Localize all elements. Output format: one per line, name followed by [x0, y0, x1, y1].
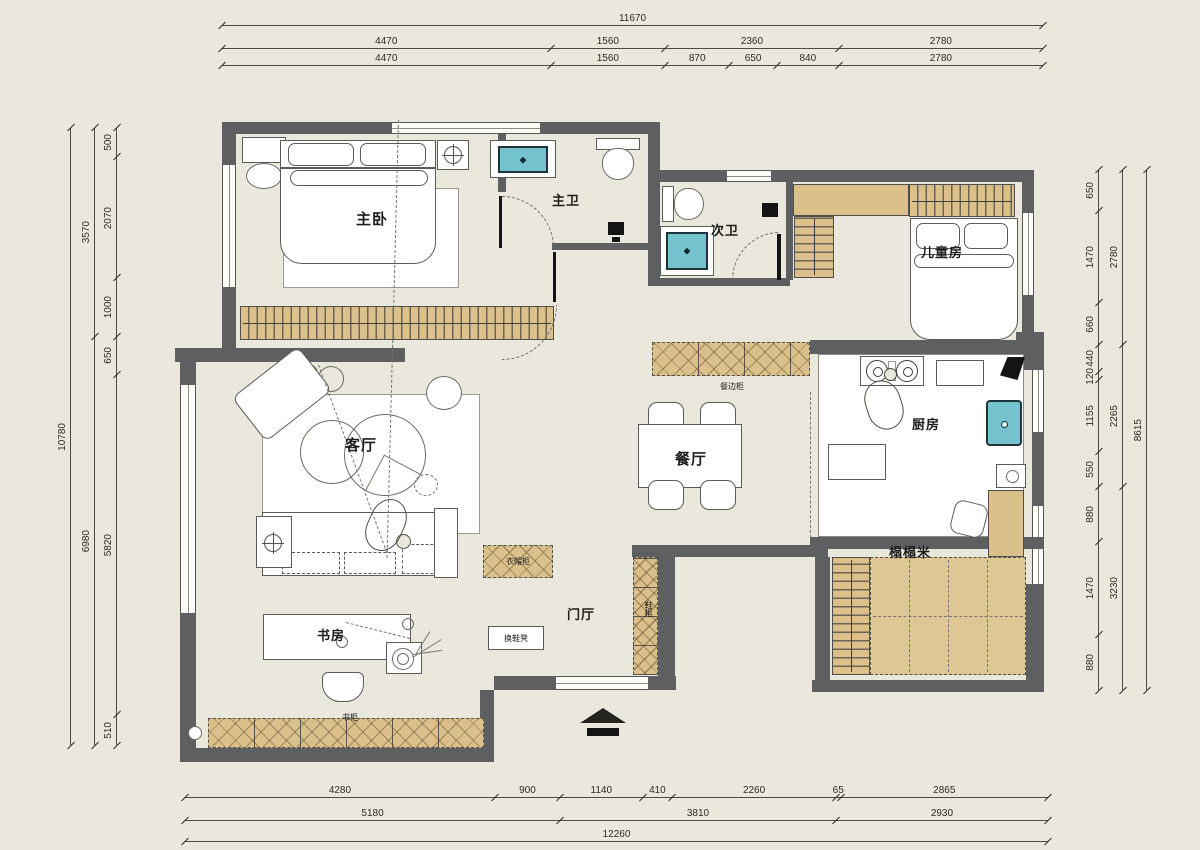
tatami-wardrobe [832, 557, 870, 675]
room-label-living: 客厅 [330, 434, 392, 455]
dim-col-left-mid: 35706980 [82, 128, 100, 745]
toilet-tank [662, 186, 674, 222]
wall-segment [648, 170, 727, 182]
washer-icon [762, 203, 778, 217]
room-label-kitchen: 厨房 [895, 414, 957, 433]
lamp-icon [444, 146, 462, 164]
dining-chair [648, 480, 684, 510]
cabinet-label-bookcase: 书柜 [330, 712, 370, 723]
cabinet-label-sideboard: 餐边柜 [706, 381, 758, 392]
wall-segment [1022, 182, 1034, 215]
door-swing-arc [450, 196, 554, 300]
kids-wardrobe-side [794, 216, 834, 278]
door-swing-arc [447, 250, 557, 360]
wall-segment [648, 122, 660, 286]
room-label-study: 书房 [305, 625, 357, 644]
sofa-armrest [434, 508, 458, 578]
kids-wardrobe [909, 184, 1015, 217]
window [180, 385, 196, 613]
room-label-second-bath: 次卫 [700, 220, 750, 239]
toilet-bowl [602, 148, 634, 180]
cabinet-label-cloak: 衣帽柜 [486, 556, 550, 567]
stool [246, 163, 282, 189]
wall-segment [1022, 295, 1034, 337]
wall-segment [222, 122, 236, 167]
sideboard-cabinet [652, 342, 810, 376]
window [1022, 213, 1034, 295]
dim-row-top-total: 11670 [222, 14, 1043, 30]
counter-board [936, 360, 984, 386]
wall-segment [180, 748, 482, 762]
dim-col-right-total: 8615 [1134, 170, 1152, 690]
entry-door-opening [556, 676, 648, 690]
room-label-dining: 餐厅 [660, 448, 722, 469]
room-label-tatami: 榻榻米 [872, 542, 948, 561]
wall-segment [648, 676, 676, 690]
entry-arrow-bar [587, 728, 619, 736]
window [727, 170, 771, 182]
wall-segment [180, 362, 196, 387]
dim-row-bottom-inner: 428090011404102260652865 [185, 786, 1048, 802]
wall-fixture-icon [608, 222, 624, 235]
sofa-cushion [402, 544, 438, 574]
study-chair [322, 672, 364, 702]
wall-segment [815, 557, 830, 692]
window [222, 165, 236, 287]
wall-segment [786, 182, 793, 280]
floor-plan-canvas: 11670 4470156023602780 44701560870650840… [0, 0, 1200, 850]
wall-segment [810, 340, 1044, 354]
wall-segment [771, 170, 1034, 182]
door-leaf [777, 234, 781, 280]
side-table-round [426, 376, 462, 410]
dim-col-left-inner: 500207010006505820510 [104, 128, 122, 745]
burner-icon [896, 360, 918, 382]
wall-segment [658, 557, 675, 683]
wall-segment [812, 680, 1044, 692]
plant-pot-inner [397, 653, 409, 665]
pillow [360, 143, 426, 166]
speaker-icon [264, 534, 282, 552]
wall-segment [1032, 432, 1044, 506]
floor-drain-icon [1006, 470, 1019, 483]
wall-segment [1026, 584, 1044, 692]
room-label-kids-room: 儿童房 [905, 242, 979, 261]
entry-arrow-icon [580, 708, 626, 723]
door-leaf [553, 252, 556, 302]
dim-row-top-inner: 447015608706508402780 [222, 54, 1043, 70]
sofa-cushion [344, 552, 396, 574]
wall-segment [494, 676, 556, 690]
window [392, 122, 540, 134]
kitchen-island [828, 444, 886, 480]
dining-chair [700, 480, 736, 510]
dim-row-bottom-total: 12260 [185, 830, 1048, 846]
tatami-grid-line [873, 616, 1023, 617]
dim-col-right-mid: 278022653230 [1110, 170, 1128, 690]
bathroom-sink [498, 146, 548, 173]
stool-dashed [414, 474, 438, 496]
desk-item [402, 618, 414, 630]
wall-segment [222, 122, 392, 134]
open-boundary-dashed [810, 392, 811, 538]
bolster [290, 170, 428, 186]
kitchen-sink [986, 400, 1022, 446]
cabinet-label-shoe-cabinet: 鞋柜 [638, 594, 654, 624]
overhead-cabinet [793, 184, 909, 216]
toilet-bowl [674, 188, 704, 220]
cabinet-label-shoe-bench: 换鞋凳 [489, 633, 543, 644]
tatami-desk [988, 490, 1024, 557]
dim-col-left-total: 10780 [58, 128, 76, 745]
wall-segment [540, 122, 660, 134]
door-leaf [499, 196, 502, 248]
pillow [288, 143, 354, 166]
wall-segment [1024, 537, 1044, 549]
room-label-master-bath: 主卫 [540, 190, 592, 209]
column-circle [188, 726, 202, 740]
dim-row-top-mid: 4470156023602780 [222, 37, 1043, 53]
dim-col-right-inner: 650147066044012011555508801470880 [1086, 170, 1104, 690]
dim-row-bottom-mid: 518038102930 [185, 809, 1048, 825]
wall-segment [632, 545, 828, 557]
window [1032, 370, 1044, 432]
wall-fixture-base [612, 237, 620, 242]
person-figure [884, 368, 897, 381]
room-label-foyer: 门厅 [556, 604, 606, 623]
